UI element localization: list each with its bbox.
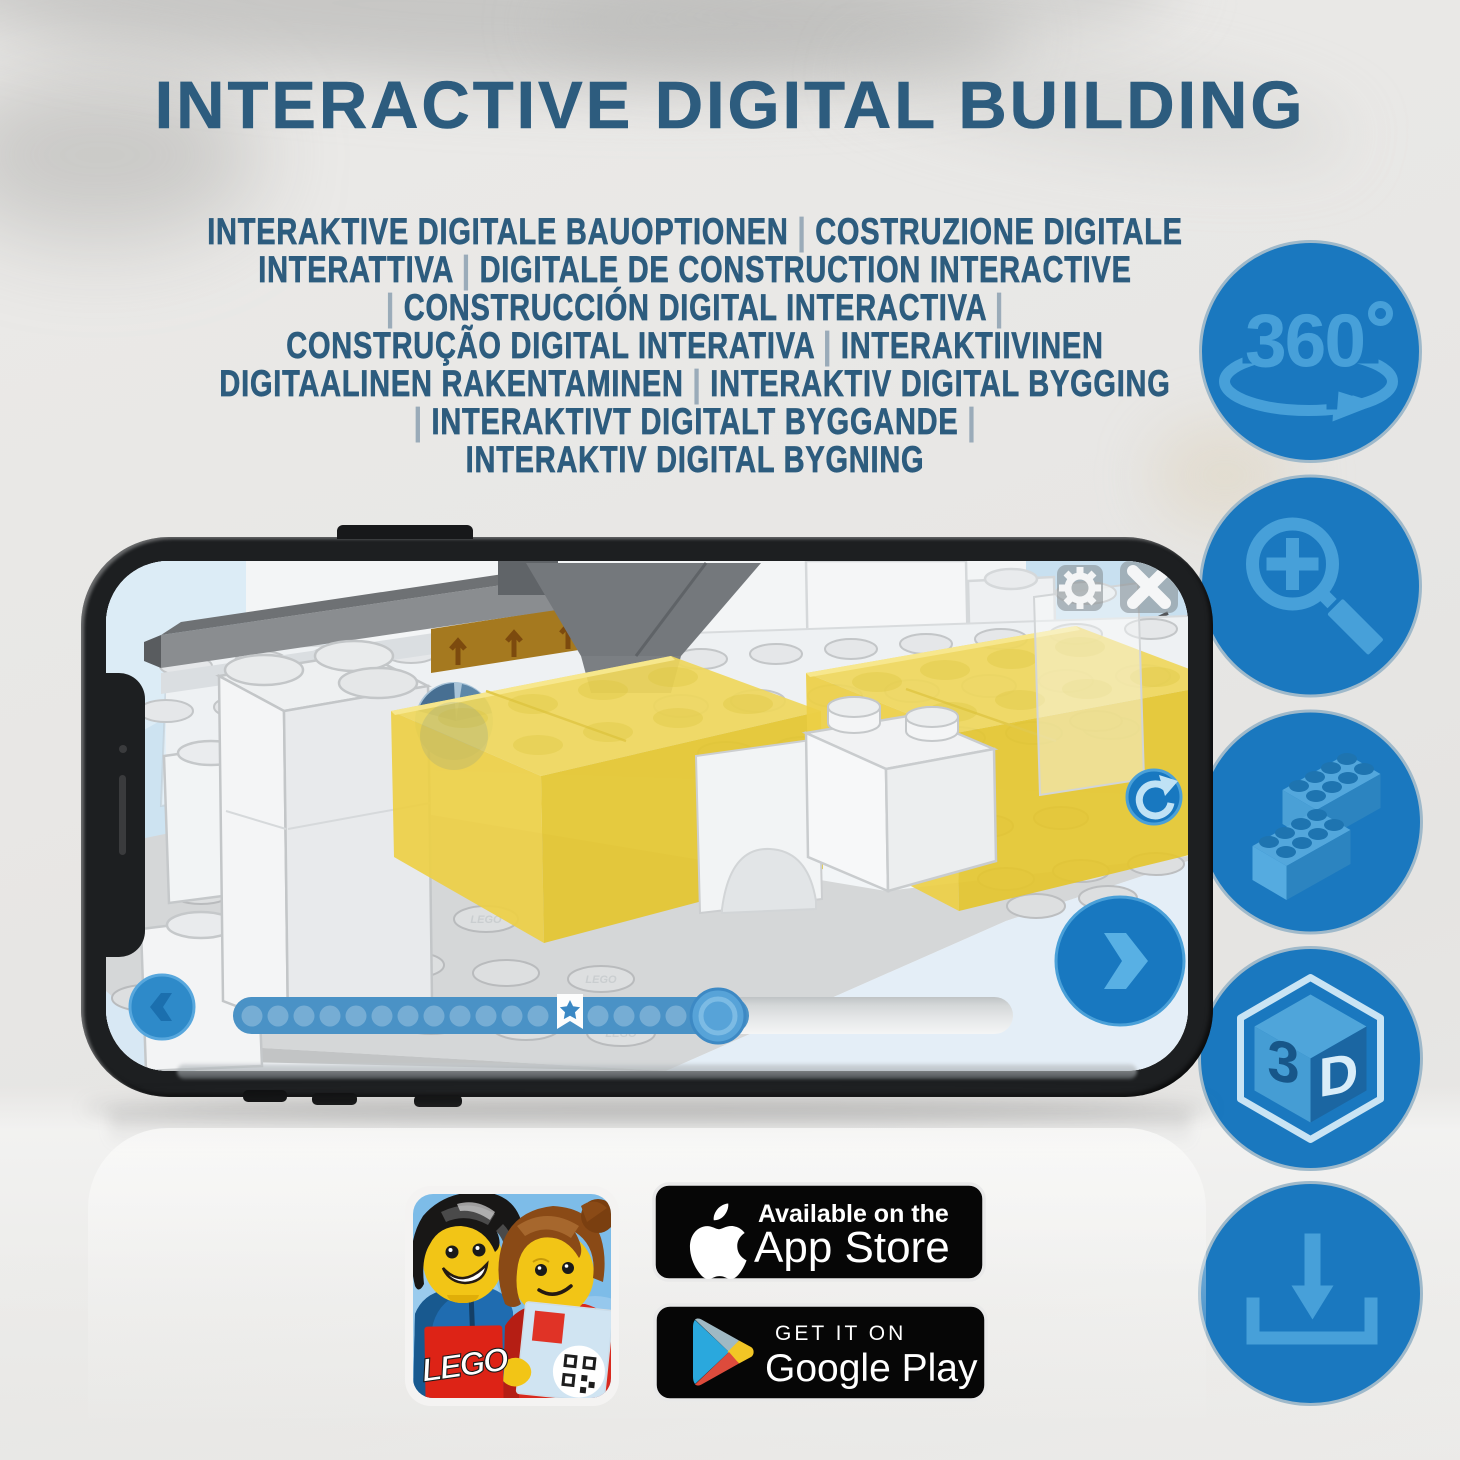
svg-text:GET IT ON: GET IT ON — [775, 1322, 906, 1345]
svg-text:D: D — [1319, 1040, 1359, 1109]
svg-text:App Store: App Store — [754, 1223, 950, 1272]
svg-text:LEGO: LEGO — [585, 974, 617, 986]
svg-text:3: 3 — [1267, 1027, 1299, 1097]
svg-text:360: 360 — [1245, 299, 1364, 383]
svg-text:Google Play: Google Play — [765, 1347, 978, 1390]
